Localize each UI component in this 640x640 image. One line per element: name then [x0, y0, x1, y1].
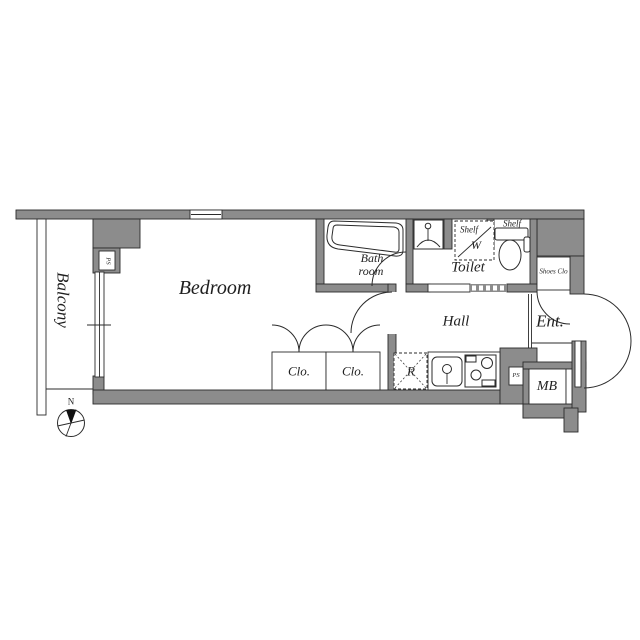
closet2-label: Clo.	[342, 365, 364, 378]
compass-north-label: N	[68, 398, 75, 407]
mb-side-slot	[566, 369, 572, 404]
refrigerator-label: R	[407, 365, 415, 378]
toilet-door-panel	[428, 284, 470, 292]
balcony-rail	[37, 219, 46, 415]
washer-letter: W	[471, 239, 481, 251]
entrance-door-arc	[584, 294, 631, 388]
closet2-door-arc-right	[353, 325, 380, 352]
balcony-label: Balcony	[55, 272, 72, 328]
fixtures	[272, 220, 530, 390]
wall-top	[16, 210, 584, 219]
wall-mid-b	[406, 284, 430, 292]
bedroom-door-opening	[387, 292, 397, 334]
wall-bottom	[93, 390, 500, 404]
wall-step-a	[93, 219, 140, 248]
toilet-control	[524, 237, 530, 252]
toilet-label: Toilet	[451, 261, 485, 276]
wall-topright-block	[537, 219, 584, 256]
bathroom-label-1: Bath	[361, 252, 384, 264]
stove-grill	[482, 380, 495, 386]
compass	[58, 410, 85, 437]
closet1-door-arc-right	[299, 325, 326, 352]
stove-burner1	[482, 358, 493, 369]
stove-burner2	[471, 370, 481, 380]
wall-right-upper	[570, 256, 584, 294]
meter-box-label: MB	[537, 380, 557, 394]
hall-label: Hall	[443, 315, 470, 330]
closet1-door-arc-left	[272, 325, 299, 352]
washbasin-faucet	[425, 223, 431, 229]
wall-bath-left	[316, 219, 324, 284]
floorplan-page: Balcony Bedroom Bath room Toilet Hall En…	[0, 0, 640, 640]
shoes-closet-label: Shoes Clo	[539, 269, 567, 276]
wall-toilet-right	[530, 219, 537, 292]
wall-stub-basin	[444, 219, 452, 249]
toilet-shelf-label: Shelf	[503, 220, 521, 229]
toilet-bowl	[499, 240, 521, 270]
bedroom-door-arc	[351, 292, 392, 333]
sink-faucet	[443, 365, 452, 374]
wall-mid-c	[507, 284, 537, 292]
closet2-door-arc-left	[326, 325, 353, 352]
stove-panel	[466, 356, 476, 362]
bedroom-label: Bedroom	[179, 278, 252, 298]
toilet-tank	[495, 228, 528, 240]
pipe-space-top-label: PS	[104, 257, 111, 264]
wall-mid-a	[316, 284, 390, 292]
closet1-label: Clo.	[288, 365, 310, 378]
wall-stub-bottomright	[564, 408, 578, 432]
bathroom-label-2: room	[359, 265, 384, 277]
washer-shelf-label: Shelf	[460, 226, 478, 235]
pipe-space-bottom-label: PS	[512, 373, 519, 380]
entrance-label: Ent.	[536, 313, 564, 330]
wall-bath-right	[406, 219, 413, 284]
entrance-door-leaf	[575, 341, 581, 387]
